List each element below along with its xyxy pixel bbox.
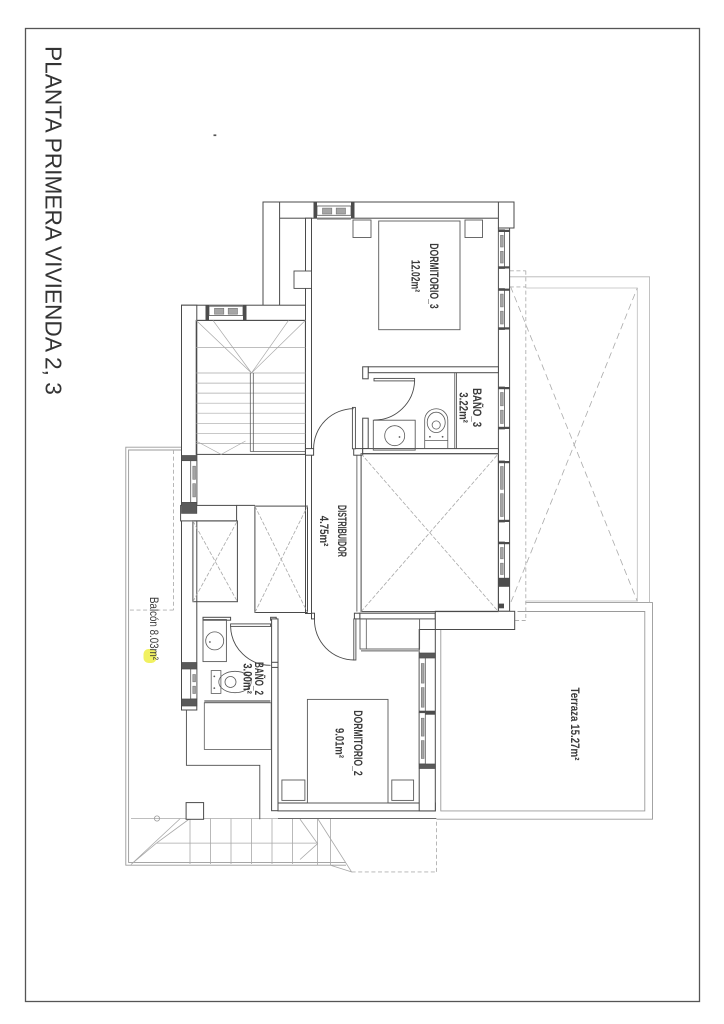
svg-text:DISTRIBUIDOR: DISTRIBUIDOR xyxy=(335,505,349,557)
svg-text:4.75m²: 4.75m² xyxy=(317,516,331,547)
svg-text:3.00m²: 3.00m² xyxy=(241,663,255,694)
svg-text:DORMITORIO_2: DORMITORIO_2 xyxy=(351,710,365,776)
svg-text:3.22m²: 3.22m² xyxy=(457,392,471,423)
svg-text:DORMITORIO_3: DORMITORIO_3 xyxy=(427,243,441,309)
svg-text:Terraza 15.27m²: Terraza 15.27m² xyxy=(568,688,582,761)
svg-text:12.02m²: 12.02m² xyxy=(409,260,423,292)
svg-text:PLANTA PRIMERA VIVIENDA 2, 3: PLANTA PRIMERA VIVIENDA 2, 3 xyxy=(41,46,67,395)
svg-text:Balcón 8.03m²: Balcón 8.03m² xyxy=(147,597,161,660)
svg-text:BAÑO_3: BAÑO_3 xyxy=(470,388,485,427)
svg-text:9.01m²: 9.01m² xyxy=(333,728,347,758)
